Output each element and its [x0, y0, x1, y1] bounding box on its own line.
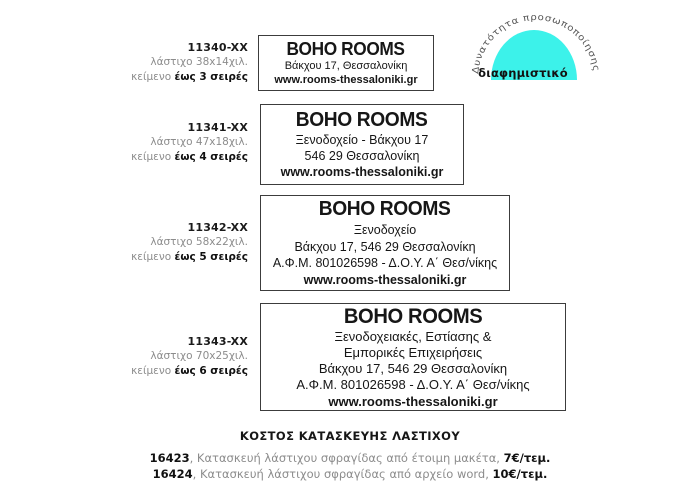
badge-graphic: Δυνατότητα προσωποποίησης διαφημιστικό: [464, 14, 608, 88]
product-size: λάστιχο 47x18χιλ.: [0, 135, 248, 150]
product-code: 11341-XX: [0, 120, 248, 135]
product-note: κείμενο έως 3 σειρές: [0, 70, 248, 85]
stamp-sample-11343: BOHO ROOMS Ξενοδοχειακές, Εστίασης & Εμπ…: [260, 303, 566, 411]
stamp-title: BOHO ROOMS: [344, 304, 482, 329]
product-size: λάστιχο 70x25χιλ.: [0, 349, 248, 364]
pricing-item: 16423, Κατασκευή λάστιχου σφραγίδας από …: [0, 451, 700, 467]
pricing-code: 16423: [150, 451, 190, 465]
product-note-prefix: κείμενο: [131, 251, 171, 263]
stamp-line: Ξενοδοχείο - Βάκχου 17: [296, 132, 429, 148]
product-label-11342: 11342-XX λάστιχο 58x22χιλ. κείμενο έως 5…: [0, 220, 248, 265]
product-code: 11340-XX: [0, 40, 248, 55]
product-note-prefix: κείμενο: [131, 365, 171, 377]
product-note: κείμενο έως 6 σειρές: [0, 364, 248, 379]
stamp-title: BOHO ROOMS: [319, 197, 451, 222]
product-code: 11342-XX: [0, 220, 248, 235]
product-note: κείμενο έως 5 σειρές: [0, 250, 248, 265]
pricing-description: , Κατασκευή λάστιχου σφραγίδας από αρχεί…: [193, 467, 493, 481]
stamp-line: Ξενοδοχειακές, Εστίασης &: [335, 329, 492, 345]
product-note-bold: έως 3 σειρές: [174, 71, 248, 83]
catalog-page: Δυνατότητα προσωποποίησης διαφημιστικό 1…: [0, 0, 700, 500]
stamp-website: www.rooms-thessaloniki.gr: [274, 73, 417, 88]
pricing-heading: ΚΟΣΤΟΣ ΚΑΤΑΣΚΕΥΗΣ ΛΑΣΤΙΧΟΥ: [0, 429, 700, 443]
product-note: κείμενο έως 4 σειρές: [0, 150, 248, 165]
stamp-line: 546 29 Θεσσαλονίκη: [305, 148, 420, 164]
product-note-bold: έως 5 σειρές: [174, 251, 248, 263]
stamp-line: Α.Φ.Μ. 801026598 - Δ.Ο.Υ. Α΄ Θεσ/νίκης: [273, 255, 497, 272]
product-note-bold: έως 4 σειρές: [174, 151, 248, 163]
stamp-line: Α.Φ.Μ. 801026598 - Δ.Ο.Υ. Α΄ Θεσ/νίκης: [296, 377, 529, 393]
stamp-website: www.rooms-thessaloniki.gr: [304, 272, 467, 289]
stamp-title: BOHO ROOMS: [287, 39, 405, 59]
pricing-price: 7€/τεμ.: [504, 451, 551, 465]
stamp-sample-11341: BOHO ROOMS Ξενοδοχείο - Βάκχου 17 546 29…: [260, 104, 464, 185]
product-size: λάστιχο 58x22χιλ.: [0, 235, 248, 250]
product-size: λάστιχο 38x14χιλ.: [0, 55, 248, 70]
product-label-11343: 11343-XX λάστιχο 70x25χιλ. κείμενο έως 6…: [0, 334, 248, 379]
stamp-line: Εμπορικές Επιχειρήσεις: [344, 345, 482, 361]
stamp-website: www.rooms-thessaloniki.gr: [281, 164, 444, 181]
stamp-title: BOHO ROOMS: [296, 108, 428, 132]
stamp-line: Βάκχου 17, 546 29 Θεσσαλονίκη: [294, 239, 475, 256]
pricing-price: 10€/τεμ.: [493, 467, 548, 481]
badge-label: διαφημιστικό: [478, 66, 568, 80]
stamp-line: Βάκχου 17, 546 29 Θεσσαλονίκη: [319, 361, 507, 377]
product-label-11340: 11340-XX λάστιχο 38x14χιλ. κείμενο έως 3…: [0, 40, 248, 85]
stamp-line: Βάκχου 17, Θεσσαλονίκη: [285, 59, 408, 73]
product-note-bold: έως 6 σειρές: [174, 365, 248, 377]
pricing-section: ΚΟΣΤΟΣ ΚΑΤΑΣΚΕΥΗΣ ΛΑΣΤΙΧΟΥ 16423, Κατασκ…: [0, 429, 700, 482]
stamp-sample-11342: BOHO ROOMS Ξενοδοχείο Βάκχου 17, 546 29 …: [260, 195, 510, 291]
stamp-line: Ξενοδοχείο: [354, 222, 416, 239]
pricing-description: , Κατασκευή λάστιχου σφραγίδας από έτοιμ…: [190, 451, 504, 465]
pricing-item: 16424, Κατασκευή λάστιχου σφραγίδας από …: [0, 467, 700, 483]
stamp-sample-11340: BOHO ROOMS Βάκχου 17, Θεσσαλονίκη www.ro…: [258, 35, 434, 91]
product-label-11341: 11341-XX λάστιχο 47x18χιλ. κείμενο έως 4…: [0, 120, 248, 165]
stamp-website: www.rooms-thessaloniki.gr: [328, 393, 497, 410]
product-note-prefix: κείμενο: [131, 151, 171, 163]
personalization-badge: Δυνατότητα προσωποποίησης διαφημιστικό: [464, 14, 608, 88]
product-code: 11343-XX: [0, 334, 248, 349]
pricing-code: 16424: [153, 467, 193, 481]
product-note-prefix: κείμενο: [131, 71, 171, 83]
